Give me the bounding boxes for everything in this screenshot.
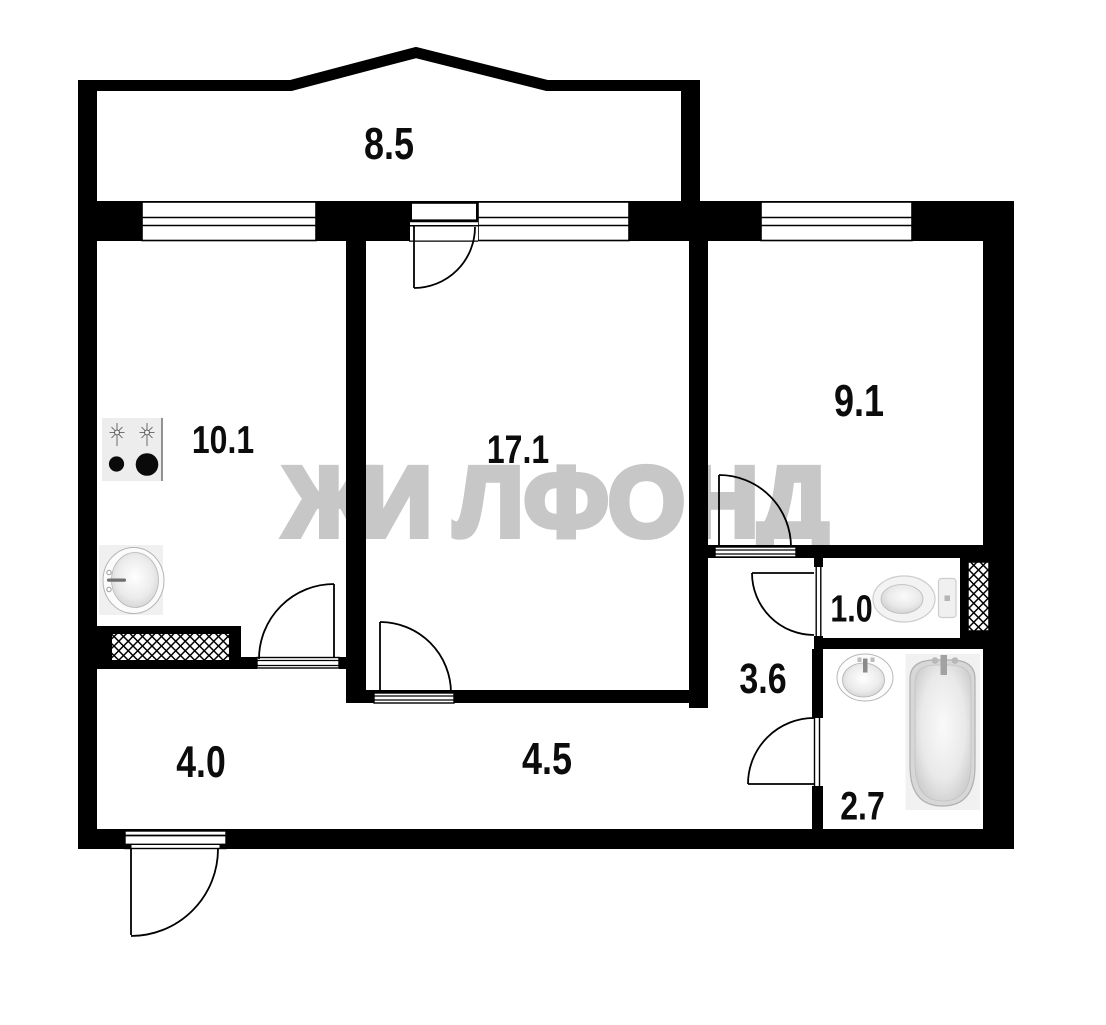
svg-text:Д: Д: [758, 446, 829, 557]
svg-text:1.0: 1.0: [830, 589, 872, 631]
svg-text:О: О: [608, 446, 685, 557]
svg-text:2.7: 2.7: [840, 785, 884, 829]
svg-text:И: И: [361, 446, 432, 557]
svg-text:4.0: 4.0: [176, 738, 226, 787]
svg-text:9.1: 9.1: [834, 375, 884, 426]
svg-text:17.1: 17.1: [487, 428, 549, 472]
svg-text:3.6: 3.6: [739, 656, 786, 703]
svg-text:4.5: 4.5: [522, 733, 572, 784]
svg-text:8.5: 8.5: [364, 118, 414, 169]
svg-text:10.1: 10.1: [192, 419, 254, 462]
